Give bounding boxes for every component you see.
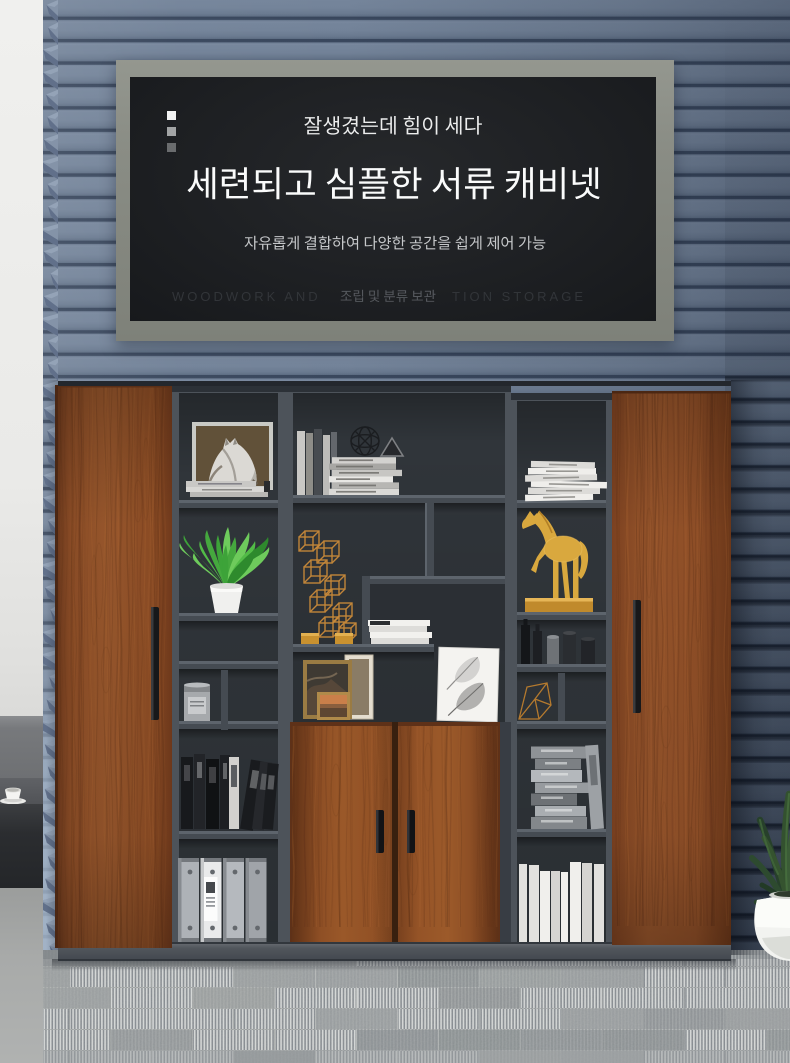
svg-text:TION STORAGE: TION STORAGE [452, 289, 586, 304]
svg-text:WOODWORK AND: WOODWORK AND [172, 289, 321, 304]
